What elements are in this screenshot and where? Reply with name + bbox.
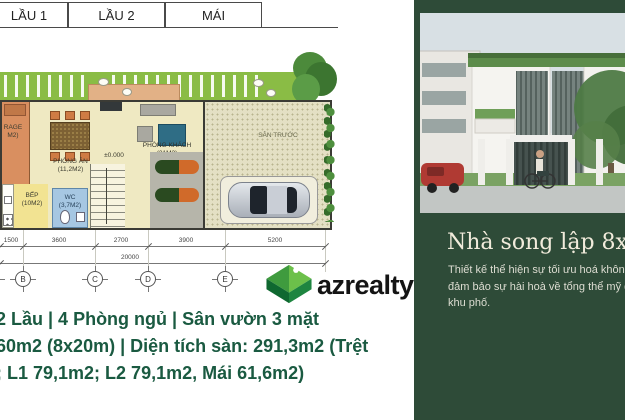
panel-description: Thiết kế thể hiện sự tối ưu hoá không đả… [448, 262, 625, 312]
chair [50, 111, 60, 120]
living-label: PHÒNG KHÁCH [143, 142, 191, 149]
spec-line-3: ; L1 79,1m2; L2 79,1m2, Mái 61,6m2) [0, 360, 416, 387]
stairs [90, 164, 125, 228]
panel-desc-line-1: Thiết kế thể hiện sự tối ưu hoá không [448, 262, 625, 279]
level-marker: ±0.000 [100, 152, 128, 160]
kitchen-area: (10M2) [22, 200, 43, 207]
grid-bubble-b: B [15, 271, 31, 287]
grid-bubble-e: E [217, 271, 233, 287]
front-yard-label: SÂN TRƯỚC [238, 132, 318, 140]
dining-area: (11,2M2) [58, 166, 84, 173]
sink [4, 196, 12, 204]
rock [253, 79, 264, 87]
stairs-arrow [106, 168, 107, 224]
dining-table [50, 122, 90, 150]
garage-area: M2) [7, 132, 18, 139]
chair [80, 111, 90, 120]
tab-mai[interactable]: MÁI [165, 2, 262, 28]
garage-label: RAGE [4, 124, 22, 131]
dim-2700: 2700 [97, 237, 145, 244]
stove [3, 214, 13, 226]
wc-label: WC [65, 194, 76, 201]
rock [98, 78, 109, 86]
fence-slats [4, 75, 86, 97]
spec-line-1: 2 Lầu | 4 Phòng ngủ | Sân vườn 3 mặt [0, 306, 416, 333]
house-photo [420, 13, 625, 213]
tab-lau-1[interactable]: LẦU 1 [0, 2, 68, 28]
dim-3600: 3600 [35, 237, 83, 244]
garage-cabinet [4, 104, 26, 116]
rock [122, 88, 132, 96]
dim-5200: 5200 [251, 237, 299, 244]
azrealty-logo-mark [263, 258, 315, 310]
kitchen-label: BẾP [25, 192, 38, 199]
dim-1500: 1500 [0, 237, 23, 244]
tab-lau-2[interactable]: LẦU 2 [68, 2, 165, 28]
vine-strip [324, 104, 337, 222]
spec-line-2: 60m2 (8x20m) | Diện tích sàn: 291,3m2 (T… [0, 333, 416, 360]
wc-area: (3,7M2) [59, 202, 81, 209]
spec-summary: 2 Lầu | 4 Phòng ngủ | Sân vườn 3 mặt 60m… [0, 306, 416, 387]
rock [266, 89, 276, 97]
panel-title: Nhà song lập 8x20 [447, 230, 625, 255]
azrealty-logo-text: azrealty [317, 270, 414, 301]
armchair [137, 126, 153, 142]
panel-desc-line-2: đảm bảo sự hài hoà về tổng thể mỹ qu [448, 279, 625, 296]
car-windshield [250, 186, 267, 214]
panel-desc-line-3: khu phố. [448, 295, 625, 312]
grid-bubble-d: D [140, 271, 156, 287]
car-roof [267, 186, 287, 214]
grid-bubble-c: C [87, 271, 103, 287]
info-panel: Nhà song lập 8x20 Thiết kế thể hiện sự t… [414, 0, 625, 420]
wc-sink [76, 212, 85, 222]
chair [65, 111, 75, 120]
sofa [140, 104, 176, 116]
motorbike [155, 188, 199, 202]
dim-3900: 3900 [162, 237, 210, 244]
page: LẦU 1 LẦU 2 MÁI RAGE M2) [0, 0, 625, 420]
motorbike [155, 160, 199, 174]
toilet [60, 210, 70, 224]
tab-bar-rule [262, 2, 338, 28]
dim-total: 20000 [106, 254, 154, 261]
tv [100, 102, 122, 111]
car-rear-window [287, 187, 297, 213]
dining-label: PHÒNG ĂN [53, 158, 88, 165]
